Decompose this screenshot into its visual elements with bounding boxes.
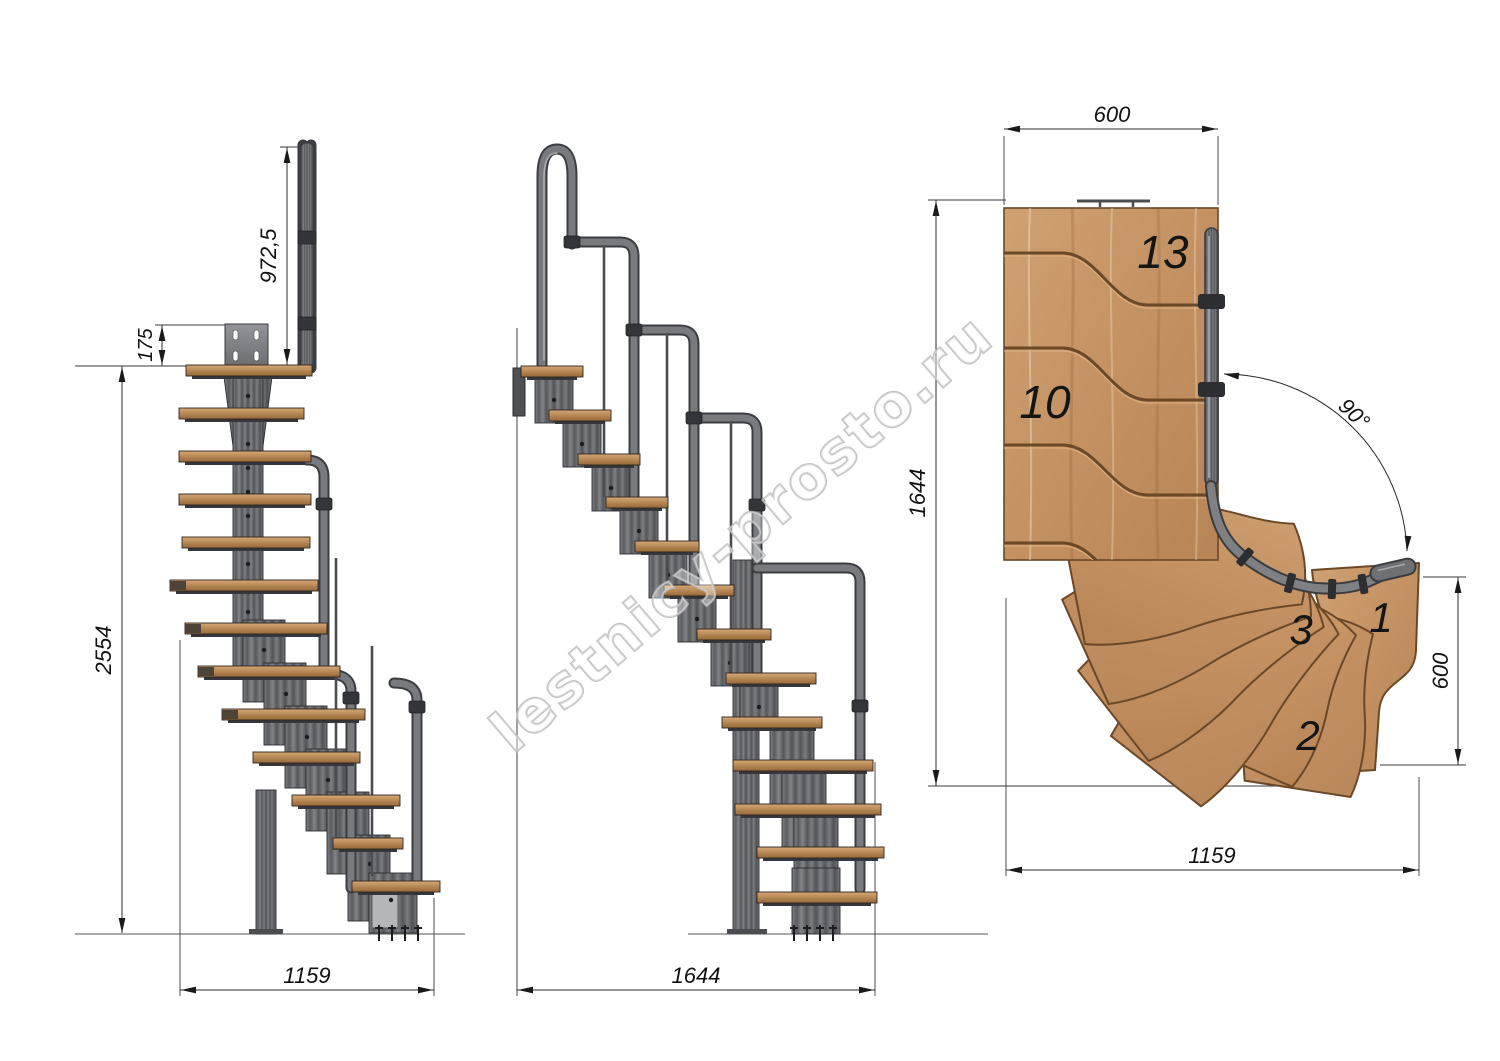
tread	[549, 410, 611, 424]
front-treads	[170, 365, 440, 895]
dimension-plan-depth: 1644	[905, 200, 939, 786]
top-mount-bracket	[1077, 201, 1150, 207]
tread	[185, 623, 327, 637]
rail-connector	[564, 236, 580, 248]
tread	[179, 494, 311, 508]
dimension-label: 972,5	[256, 228, 281, 284]
tread	[253, 752, 360, 766]
rail-connector	[626, 324, 642, 336]
rail-connector	[316, 498, 332, 510]
rail-connector	[298, 231, 316, 244]
dimension-label: 600	[1094, 102, 1131, 127]
rail-connector	[852, 700, 868, 712]
rail-connector	[298, 317, 316, 330]
dimension-label: 1159	[283, 963, 330, 988]
dimension-label: 600	[1428, 652, 1453, 689]
plan-handrail	[1198, 228, 1417, 599]
wall-mount-plate	[225, 324, 268, 366]
tread	[726, 673, 816, 687]
dimension-plan-flight-width: 600	[1004, 102, 1218, 132]
tread	[179, 408, 304, 422]
dimension-plan-length: 1159	[1006, 843, 1419, 873]
side-elevation-view: 1644	[513, 149, 988, 996]
step-label-13: 13	[1137, 226, 1189, 278]
dimension-front-length: 1159	[180, 963, 434, 993]
dimension-label: 175	[135, 327, 157, 361]
staircase-technical-drawing: 2554 175 972,5 1159	[0, 0, 1500, 1061]
dimension-label: 1159	[1188, 843, 1235, 868]
drawing-page: 2554 175 972,5 1159	[0, 0, 1500, 1061]
tread	[352, 881, 440, 895]
handrail-loop	[542, 149, 572, 368]
tread	[521, 366, 583, 380]
dimension-label: 2554	[91, 626, 116, 676]
tread	[735, 804, 881, 818]
tread	[170, 580, 318, 594]
handrail-post	[301, 143, 313, 369]
tread	[198, 666, 340, 680]
rail-connector	[343, 692, 359, 704]
tread	[182, 537, 310, 551]
rail-connector	[686, 412, 702, 424]
step-label-2: 2	[1295, 712, 1319, 759]
tread	[292, 795, 400, 809]
pole-flange	[727, 929, 767, 934]
tread	[186, 365, 312, 379]
handrail-top-view	[1205, 228, 1218, 486]
dimension-label: 90°	[1334, 393, 1375, 434]
dimension-total-height: 2554	[91, 366, 125, 933]
tread	[179, 451, 311, 465]
tread	[333, 838, 403, 852]
tread	[757, 847, 884, 861]
rail-connector	[409, 701, 425, 713]
pole-flange	[249, 929, 283, 934]
plan-view: 13 10 3 1 2 600 1644 600 1159 90°	[905, 102, 1466, 876]
dimension-label: 1644	[672, 963, 721, 988]
tread	[222, 709, 365, 723]
dimension-side-length: 1644	[517, 963, 875, 993]
support-pole	[256, 790, 276, 934]
dimension-plan-entry-width: 600	[1428, 577, 1461, 765]
tread	[722, 717, 822, 731]
dimension-label: 1644	[905, 469, 930, 518]
tread	[578, 454, 640, 468]
dimension-mount-plate: 175	[135, 325, 165, 366]
tread	[757, 892, 877, 906]
step-label-3: 3	[1289, 606, 1312, 653]
step-label-10: 10	[1019, 376, 1071, 428]
tread	[697, 629, 771, 643]
tread	[606, 497, 668, 511]
tread	[733, 760, 873, 774]
step-label-1: 1	[1369, 594, 1392, 641]
front-elevation-view: 2554 175 972,5 1159	[75, 143, 465, 996]
